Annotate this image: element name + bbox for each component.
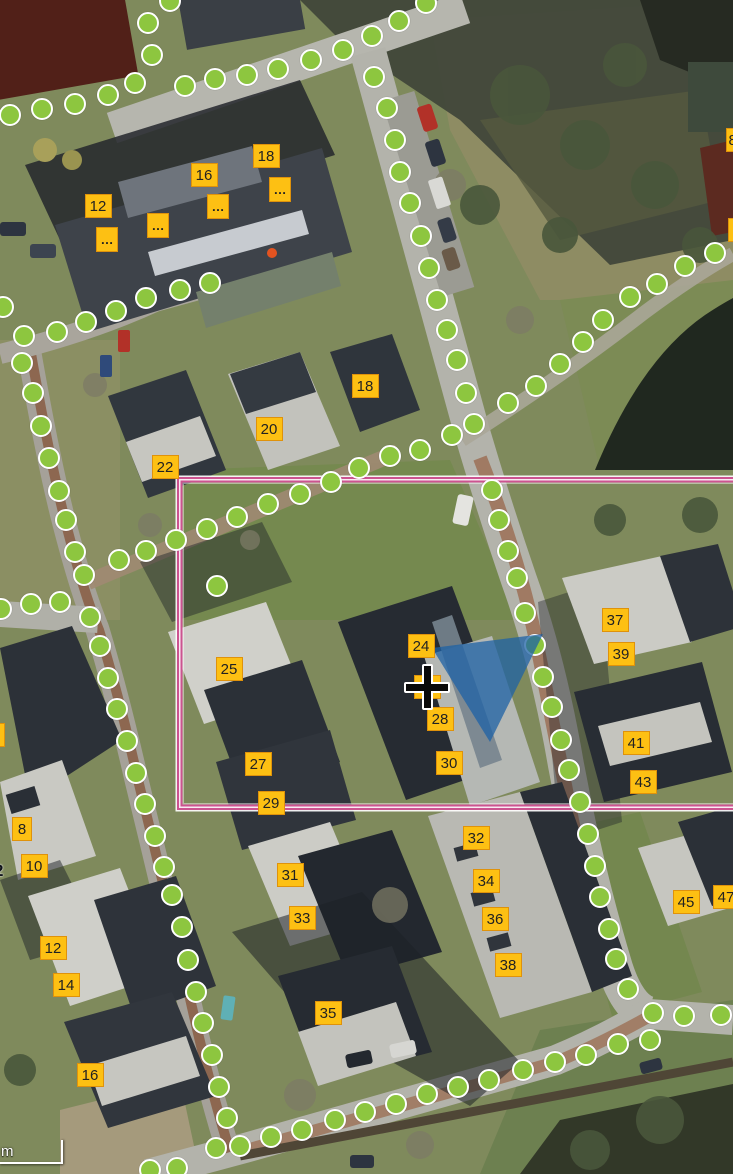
house-number-label[interactable]: 29 <box>258 791 285 815</box>
house-number-label[interactable]: 28 <box>427 707 454 731</box>
house-number-label[interactable]: 43 <box>630 770 657 794</box>
house-number-label[interactable]: 12 <box>40 936 67 960</box>
house-number-label[interactable]: 32 <box>463 826 490 850</box>
house-number-label[interactable]: … <box>269 177 291 202</box>
house-number-label[interactable]: 16 <box>191 163 218 187</box>
house-number-label[interactable]: 14 <box>53 973 80 997</box>
scale-bar-tick <box>61 1140 63 1164</box>
house-number-label[interactable]: 8 <box>726 128 733 152</box>
house-number-label[interactable]: 16 <box>77 1063 104 1087</box>
house-number-label[interactable]: 12 <box>85 194 112 218</box>
house-number-label[interactable]: … <box>147 213 169 238</box>
house-number-label[interactable]: 10 <box>21 854 48 878</box>
house-number-label[interactable]: 18 <box>253 144 280 168</box>
house-number-label[interactable]: 30 <box>436 751 463 775</box>
house-number-label[interactable]: 38 <box>495 953 522 977</box>
scale-bar-line <box>0 1162 63 1164</box>
house-number-label[interactable]: 37 <box>602 608 629 632</box>
house-number-label[interactable]: 47 <box>713 885 733 909</box>
house-number-label[interactable]: 39 <box>608 642 635 666</box>
house-number-label[interactable]: 31 <box>277 863 304 887</box>
house-number-label[interactable]: … <box>207 194 229 219</box>
house-number-label[interactable]: 45 <box>673 890 700 914</box>
house-number-label[interactable]: 36 <box>482 907 509 931</box>
house-number-label[interactable]: 27 <box>245 752 272 776</box>
house-number-label[interactable]: 25 <box>216 657 243 681</box>
house-number-label[interactable] <box>728 218 733 242</box>
house-number-label[interactable]: … <box>96 227 118 252</box>
house-number-label[interactable]: 22 <box>152 455 179 479</box>
map-canvas[interactable]: 1216181820222425262728293031323334353637… <box>0 0 733 1174</box>
house-number-label[interactable]: 35 <box>315 1001 342 1025</box>
house-number-label[interactable]: 24 <box>408 634 435 658</box>
house-number-label[interactable]: 18 <box>352 374 379 398</box>
scale-bar-unit: m <box>1 1143 14 1160</box>
house-number-label[interactable] <box>0 723 5 747</box>
house-number-label[interactable]: 41 <box>623 731 650 755</box>
scale-bar: m <box>0 1140 70 1174</box>
house-number-label[interactable]: 34 <box>473 869 500 893</box>
labels-layer: 1216181820222425262728293031323334353637… <box>0 0 733 1174</box>
house-number-label[interactable]: 8 <box>12 817 32 841</box>
house-number-label[interactable]: 33 <box>289 906 316 930</box>
house-number-label[interactable]: 20 <box>256 417 283 441</box>
crosshair-icon <box>404 664 450 710</box>
plain-number-label: 2 <box>0 861 3 881</box>
